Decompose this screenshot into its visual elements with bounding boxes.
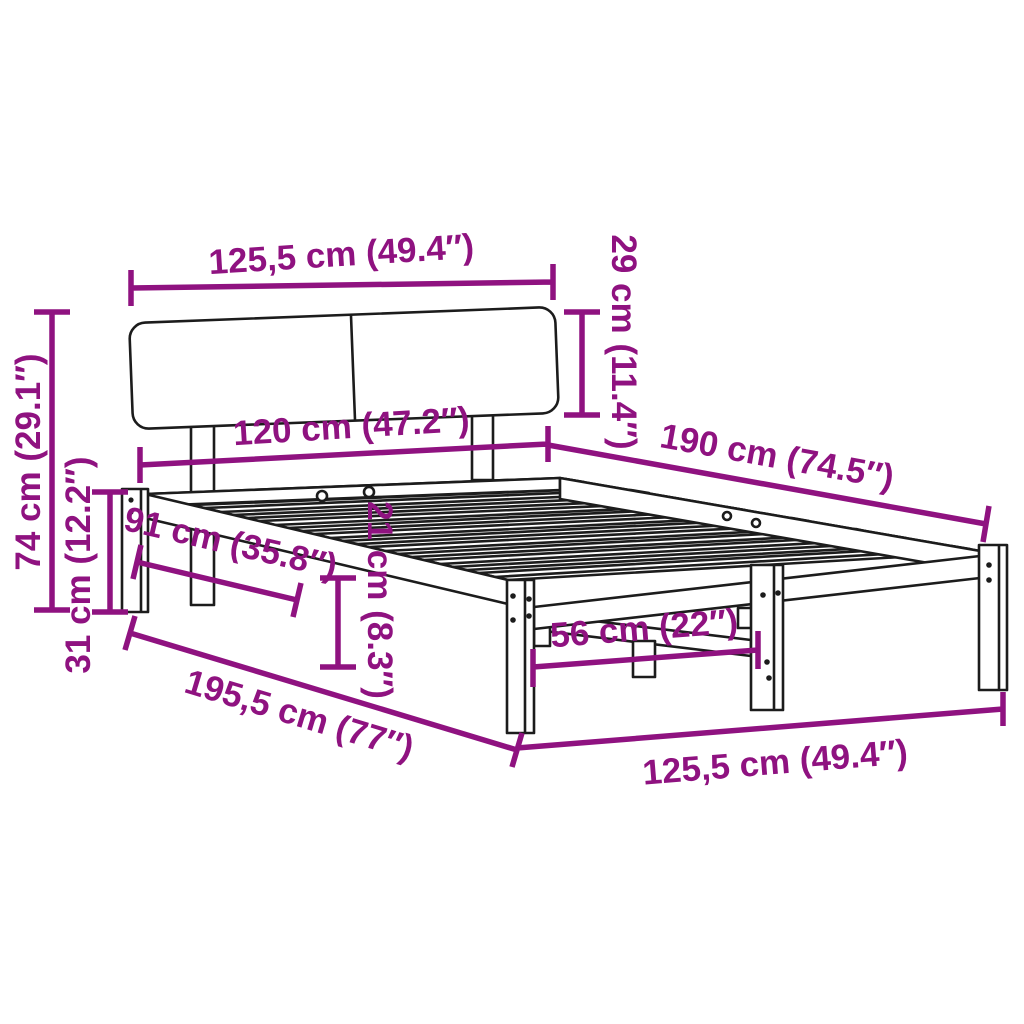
rail-knob	[723, 512, 731, 520]
rail-knob	[317, 491, 327, 501]
dim-line-headboard-height	[564, 312, 600, 415]
dim-label-total-height: 74 cm (29.1″)	[9, 353, 48, 570]
dim-label-headboard-height: 29 cm (11.4″)	[604, 234, 643, 449]
bed-dimension-diagram: 125,5 cm (49.4″) 29 cm (11.4″) 120 cm (4…	[0, 0, 1024, 1024]
leg-foot-far	[979, 545, 1007, 690]
dim-label-under-bed-clearance: 21 cm (8.3″)	[360, 501, 399, 699]
diagram-canvas: 125,5 cm (49.4″) 29 cm (11.4″) 120 cm (4…	[0, 0, 1024, 1024]
rail-knob	[364, 487, 374, 497]
dim-label-headboard-width: 125,5 cm (49.4″)	[207, 227, 475, 282]
dim-label-frame-width: 125,5 cm (49.4″)	[641, 732, 909, 792]
dim-line-under-bed-clearance	[320, 578, 356, 667]
leg-foot-near	[507, 580, 534, 733]
dim-label-frame-height: 31 cm (12.2″)	[59, 456, 98, 673]
rail-knob	[752, 519, 760, 527]
